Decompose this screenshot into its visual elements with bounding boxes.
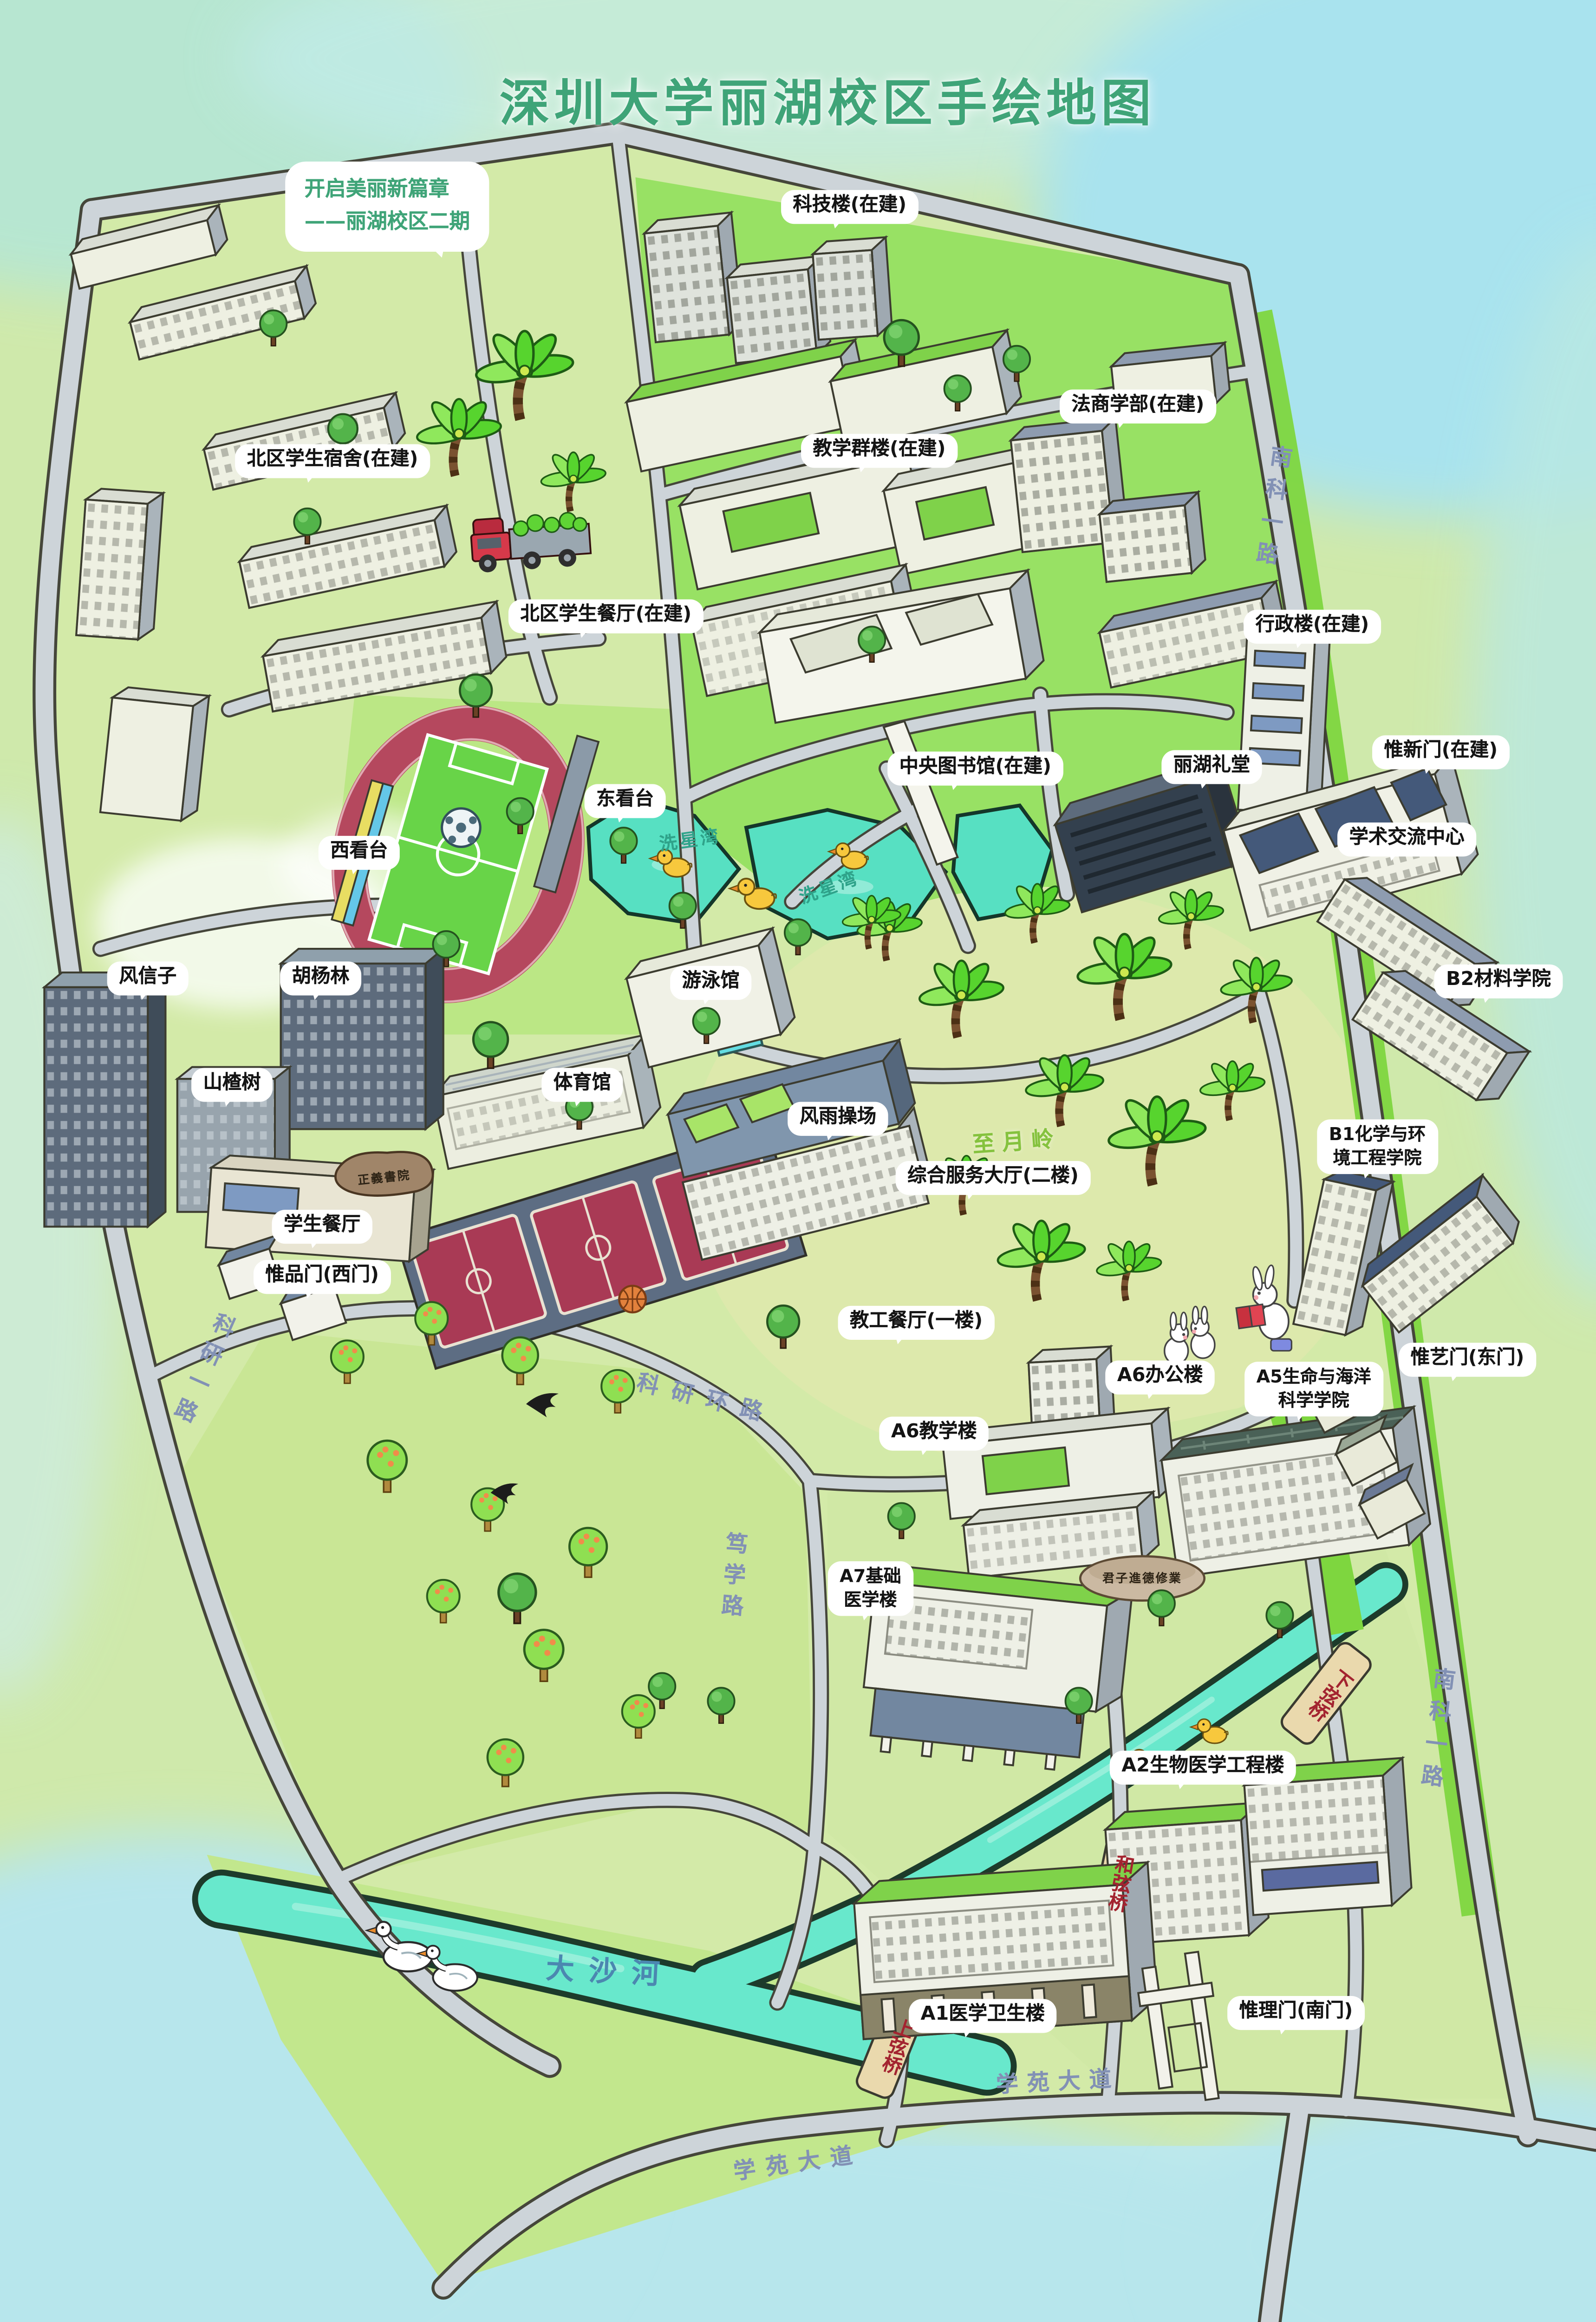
label-youyongguan: 游泳馆 <box>670 966 751 1000</box>
road-label-xueyuan-dadao-east: 学苑大道 <box>995 2062 1121 2100</box>
label-lihu-litang: 丽湖礼堂 <box>1161 750 1262 784</box>
label-xingzheng-lou: 行政楼(在建) <box>1244 610 1381 644</box>
label-a6-bangonglou: A6办公楼 <box>1105 1361 1215 1395</box>
label-keji-lou: 科技楼(在建) <box>781 190 919 224</box>
label-a7-jichu: A7基础 医学楼 <box>828 1561 913 1616</box>
bridge-label-shangxian: 上弦桥 <box>873 2014 918 2077</box>
label-a2-gongchenglou: A2生物医学工程楼 <box>1110 1751 1296 1785</box>
label-fengxinzi: 风信子 <box>107 961 189 995</box>
stone-label-zhengyi: 正義書院 <box>357 1167 412 1189</box>
map-title: 深圳大学丽湖校区手绘地图 <box>500 63 1156 135</box>
river-label-dashahe: 大沙河 <box>545 1947 676 1993</box>
road-label-nanke-yilu-south: 南科一路 <box>1414 1666 1461 1799</box>
road-label-xueyuan-dadao-west: 学苑大道 <box>731 2138 865 2186</box>
bridge-label-xiaxian: 下弦桥 <box>1300 1663 1357 1725</box>
label-beiqu-sushe: 北区学生宿舍(在建) <box>235 444 430 478</box>
label-xuesheng-canting: 学生餐厅 <box>272 1210 372 1244</box>
label-a6-jiaoxuelou: A6教学楼 <box>879 1417 989 1451</box>
announcement-bubble: 开启美丽新篇章 ——丽湖校区二期 <box>285 162 489 252</box>
label-jiaogong-canting: 教工餐厅(一楼) <box>838 1306 995 1340</box>
label-beiqu-canting: 北区学生餐厅(在建) <box>508 600 704 633</box>
bridge-label-hexian: 和弦桥 <box>1100 1852 1138 1914</box>
label-jiaoxue-qunlou: 教学群楼(在建) <box>801 434 958 468</box>
label-zonghe-dating: 综合服务大厅(二楼) <box>896 1161 1091 1195</box>
label-xikantai: 西看台 <box>319 836 400 870</box>
label-weiyi-men: 惟艺门(东门) <box>1399 1343 1536 1376</box>
label-xueshu-jiaoliu: 学术交流中心 <box>1337 822 1476 856</box>
label-weili-men: 惟理门(南门) <box>1227 1996 1365 2030</box>
label-b1-huanjing: B1化学与环 境工程学院 <box>1317 1119 1437 1174</box>
label-a1-weishenglou: A1医学卫生楼 <box>909 1999 1057 2033</box>
label-huyanglin: 胡杨林 <box>280 961 361 995</box>
road-label-nanke-yilu-north: 南科一路 <box>1250 444 1298 577</box>
label-tiyuguan: 体育馆 <box>541 1068 623 1102</box>
label-weipin-men: 惟品门(西门) <box>254 1260 391 1294</box>
stone-label-junzi: 君子進德修業 <box>1102 1570 1182 1586</box>
road-label-keyan-huanlu: 科研环路 <box>634 1366 779 1430</box>
label-weixin-men: 惟新门(在建) <box>1372 735 1510 769</box>
label-fashang-xuebu: 法商学部(在建) <box>1060 390 1216 424</box>
road-label-duxue-lu: 笃学路 <box>716 1531 753 1626</box>
label-a5-haiyang: A5生命与海洋 科学学院 <box>1244 1362 1383 1416</box>
lake-label-xixingwan-east: 洗星湾 <box>795 864 862 909</box>
label-shanzhashu: 山楂树 <box>191 1068 273 1102</box>
label-fengyu-caochang: 风雨操场 <box>788 1102 888 1136</box>
campus-map: 深圳大学丽湖校区手绘地图 开启美丽新篇章 ——丽湖校区二期 科技楼(在建) 北区… <box>0 0 1596 2322</box>
label-zhongyang-tushuguan: 中央图书馆(在建) <box>887 751 1063 785</box>
label-layer: 深圳大学丽湖校区手绘地图 开启美丽新篇章 ——丽湖校区二期 科技楼(在建) 北区… <box>0 0 1596 2322</box>
label-b2-cailiao: B2材料学院 <box>1434 965 1563 998</box>
lake-label-xixingwan-west: 洗星湾 <box>658 823 723 856</box>
label-dongkantai: 东看台 <box>585 784 666 818</box>
road-label-keyan-yilu: 科研一路 <box>164 1309 243 1435</box>
place-label-zhiyueling: 至月岭 <box>971 1122 1062 1160</box>
